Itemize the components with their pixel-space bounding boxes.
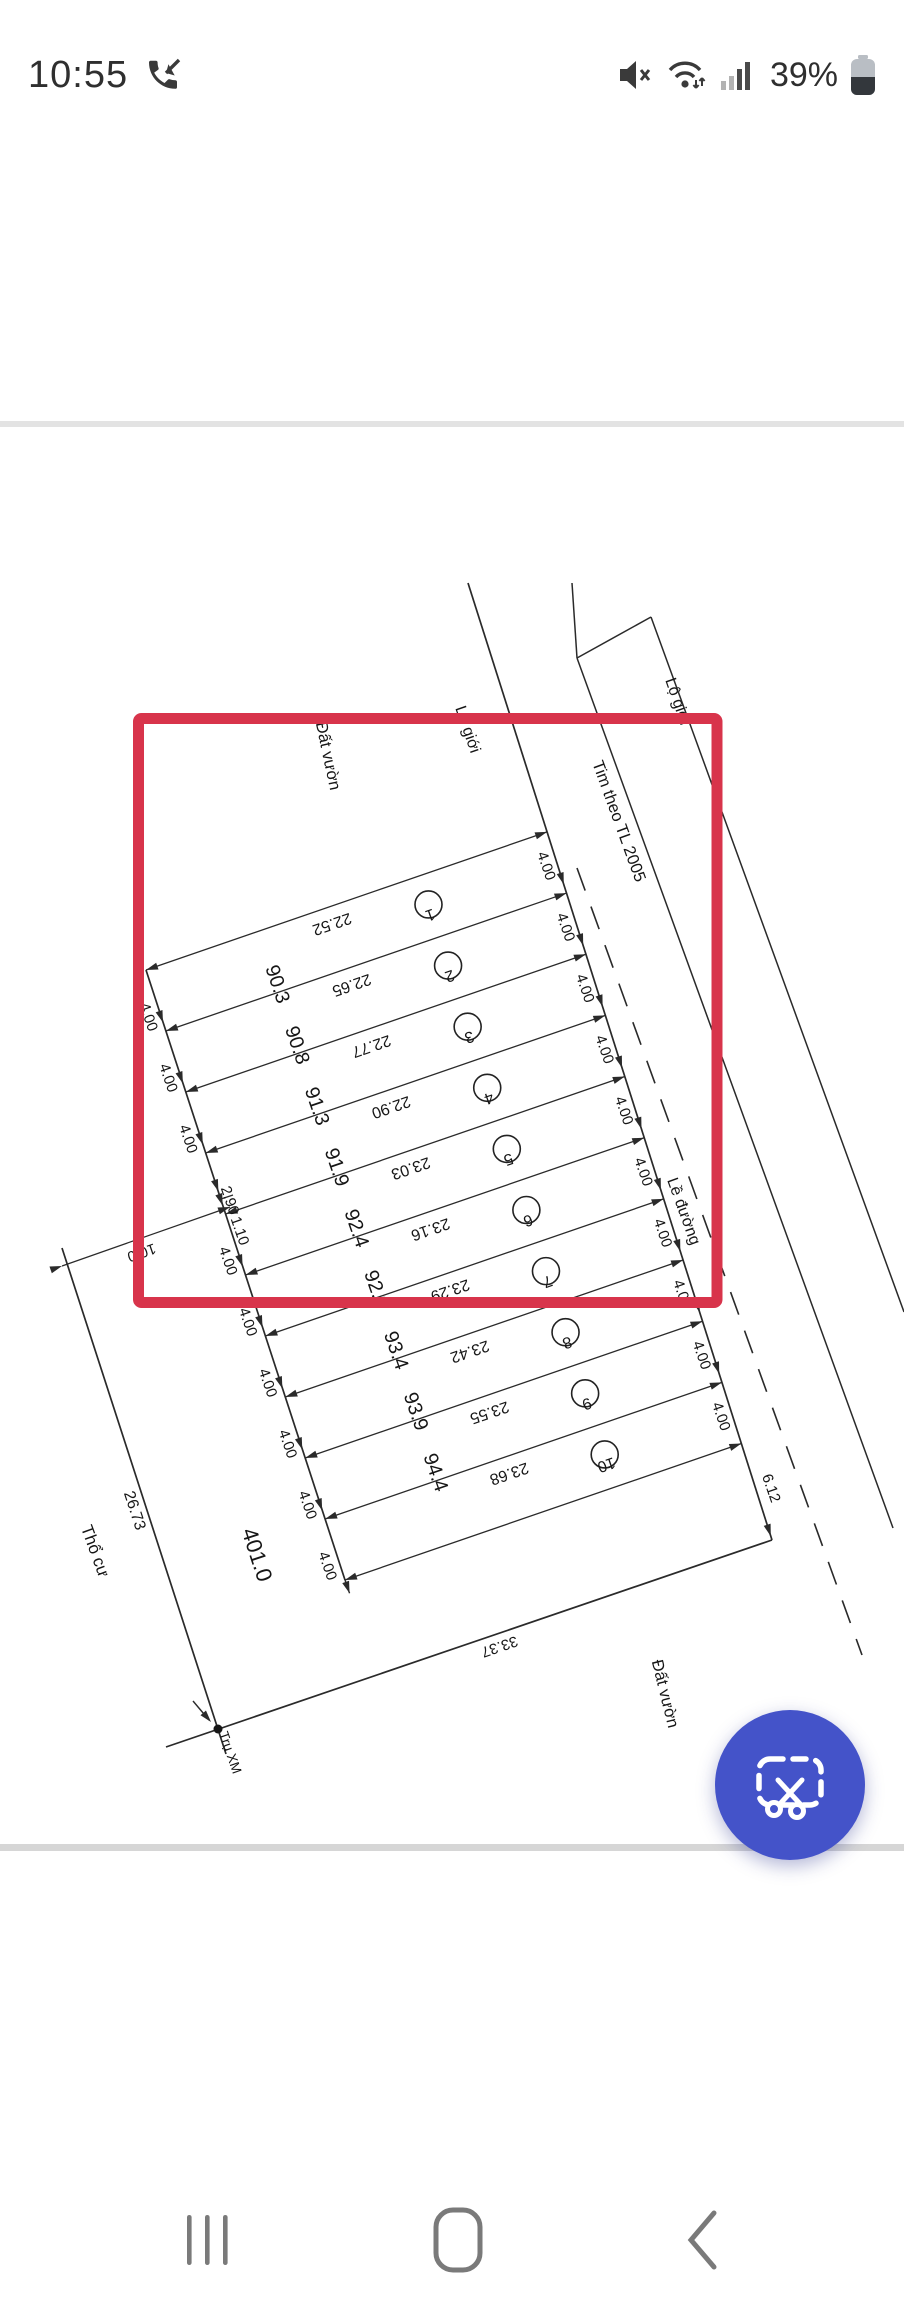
plot-length-label: 23.42 — [448, 1336, 491, 1365]
plot-number: 9 — [580, 1394, 594, 1413]
recents-button[interactable] — [175, 2203, 241, 2280]
south-boundary-label: 33.37 — [479, 1632, 520, 1660]
back-button[interactable] — [675, 2199, 729, 2284]
plot-number: 8 — [560, 1332, 574, 1351]
dimension-arrow — [709, 1382, 722, 1389]
dimension-arrow — [593, 1015, 606, 1022]
recents-icon — [185, 2213, 231, 2267]
plot-area-label: 91.9 — [320, 1145, 353, 1189]
dimension-arrow — [612, 1077, 625, 1084]
west-boundary-line — [62, 1248, 226, 1754]
dimension-arrow — [729, 1444, 742, 1451]
right-end-width-label: 6.12 — [758, 1472, 784, 1505]
frontage-end-arrow — [764, 1524, 771, 1537]
plot-number: 6 — [521, 1210, 535, 1229]
plot-length-label: 22.65 — [330, 970, 373, 999]
west-boundary-label: 26.73 — [120, 1489, 149, 1532]
plot-division-line — [345, 1444, 741, 1580]
plot-length-label: 23.55 — [468, 1397, 511, 1426]
plot-division-line — [305, 1321, 702, 1458]
front-dim-arrow — [49, 1266, 62, 1273]
road-branch-line — [577, 617, 651, 658]
plot-number: 1 — [423, 905, 437, 924]
survey-post-label: Trụ XM — [216, 1729, 244, 1775]
plot-number: 5 — [501, 1149, 515, 1168]
plot-division-line — [226, 1077, 625, 1214]
plot-length-label: 23.16 — [409, 1214, 452, 1243]
survey-plan-image: 22.52190.322.65290.822.77391.322.90491.9… — [0, 0, 904, 2316]
plot-area-label: 90.3 — [260, 962, 293, 1006]
plot-number: 7 — [540, 1271, 554, 1290]
plot-length-label: 22.90 — [369, 1092, 412, 1121]
dimension-arrow — [573, 954, 586, 961]
dimension-arrow — [206, 1146, 219, 1153]
dimension-arrow — [690, 1321, 703, 1328]
garden-land-label: Đất vườn — [312, 720, 344, 792]
plot-division-line — [206, 1015, 606, 1153]
plot-length-label: 23.03 — [389, 1153, 432, 1182]
back-icon — [685, 2209, 719, 2271]
dimension-arrow — [535, 832, 548, 839]
left-edge-end-arrow — [342, 1581, 349, 1594]
road-centerline-label: Tim theo TL 2005 — [588, 758, 649, 884]
residential-land-label: Thổ cư — [77, 1523, 113, 1580]
road-centerline — [577, 658, 893, 1528]
plot-division-line — [166, 893, 567, 1031]
road-boundary-label: Lộ giới — [451, 704, 483, 756]
left-width-label: 1.10 — [227, 1214, 253, 1247]
plot-area-label: 93.4 — [379, 1329, 412, 1373]
dimension-arrow — [285, 1390, 298, 1397]
plot-area-label: 90.8 — [280, 1023, 313, 1067]
plot-area-label: 93.9 — [399, 1390, 432, 1434]
plot-area-label: 91.3 — [300, 1084, 333, 1128]
plot-length-label: 23.68 — [487, 1459, 530, 1488]
dimension-arrow — [146, 963, 159, 970]
android-screenshot: 10:55 — [0, 0, 904, 2316]
plot-division-line — [325, 1382, 722, 1519]
screenshot-crop-fab[interactable] — [715, 1710, 865, 1860]
plot-length-label: 22.77 — [349, 1031, 392, 1060]
garden-land-label: Đất vườn — [648, 1658, 682, 1730]
plot-length-label: 22.52 — [310, 909, 353, 938]
plot-division-line — [246, 1138, 645, 1275]
remaining-area-label: 401.0 — [237, 1525, 278, 1585]
plot-division-line — [265, 1199, 663, 1336]
plot-number: 2 — [442, 966, 456, 985]
dimension-arrow — [651, 1199, 664, 1206]
crop-scissors-icon — [747, 1742, 833, 1828]
plot-number: 3 — [462, 1027, 476, 1046]
dimension-arrow — [265, 1329, 278, 1336]
dimension-arrow — [671, 1260, 684, 1267]
home-icon — [433, 2207, 483, 2273]
dimension-arrow — [186, 1085, 199, 1092]
plot-division-line — [146, 832, 547, 970]
dimension-arrow — [305, 1451, 318, 1458]
photo-top-divider — [0, 421, 904, 427]
road-centerline — [572, 583, 577, 658]
dimension-arrow — [345, 1573, 358, 1580]
dimension-arrow — [325, 1512, 338, 1519]
plot-division-line — [285, 1260, 683, 1397]
home-button[interactable] — [423, 2197, 493, 2286]
dimension-arrow — [166, 1024, 179, 1031]
plot-area-label: 94.4 — [419, 1451, 452, 1495]
plot-area-label: 92.4 — [339, 1206, 372, 1250]
plot-division-line — [186, 954, 586, 1092]
dimension-arrow — [554, 893, 567, 900]
navigation-bar — [0, 2166, 904, 2316]
plot-number: 10 — [595, 1453, 617, 1475]
dimension-arrow — [246, 1268, 259, 1275]
dimension-arrow — [632, 1138, 645, 1145]
plot-number: 4 — [482, 1088, 496, 1107]
